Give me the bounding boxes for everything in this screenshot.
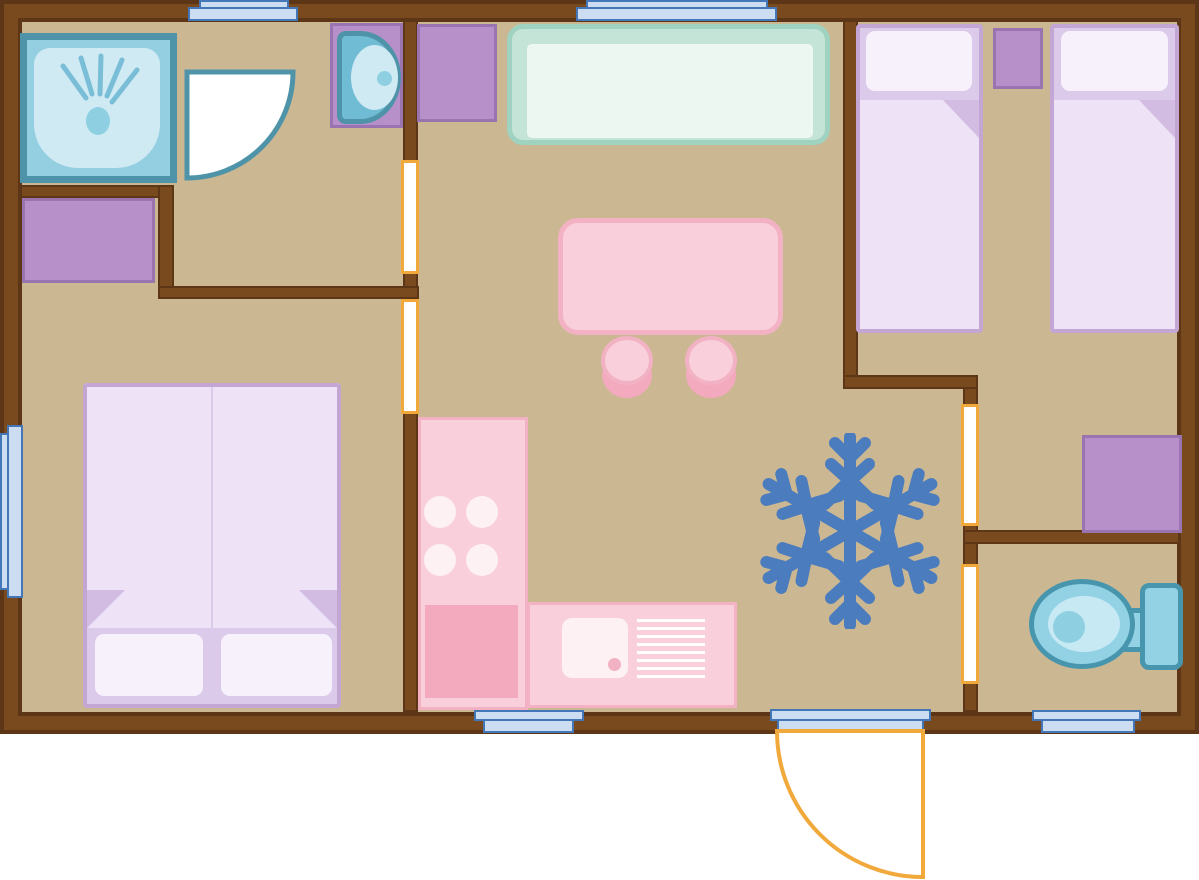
nightstand bbox=[993, 28, 1043, 89]
single-bed-left-pillow bbox=[866, 31, 972, 91]
floor-plan bbox=[0, 0, 1199, 880]
window-top-left-inner-pane bbox=[188, 7, 298, 21]
wall-right-lower-stub bbox=[963, 682, 978, 712]
toilet-bowl-water bbox=[1053, 611, 1085, 643]
single-bed-left-duvet bbox=[860, 100, 979, 329]
shower-door-swing bbox=[175, 60, 305, 190]
double-bed-seam bbox=[211, 387, 213, 628]
double-bed-pillow-left bbox=[95, 634, 203, 696]
stool-right bbox=[685, 336, 737, 385]
window-left-inner-pane bbox=[7, 425, 23, 598]
door-opening-bathroom bbox=[401, 160, 419, 274]
double-bed-pillow-right bbox=[221, 634, 332, 696]
hob-burner-2 bbox=[466, 496, 498, 528]
wall-hall-upper bbox=[403, 20, 418, 162]
single-bed-right-duvet bbox=[1054, 100, 1175, 329]
entrance-door-swing bbox=[768, 704, 938, 880]
door-opening-toilet bbox=[961, 564, 979, 684]
window-bottom-right-outer-pane bbox=[1041, 719, 1135, 733]
wall-under-shower bbox=[20, 185, 174, 198]
kitchen-appliance bbox=[425, 605, 518, 698]
kitchen-sink-drain bbox=[608, 658, 621, 671]
shower-spray-icon bbox=[34, 48, 160, 168]
wall-bathroom-vertical bbox=[158, 185, 174, 299]
door-opening-hall bbox=[401, 299, 419, 414]
kitchen-drainer-lines bbox=[637, 619, 705, 679]
bathroom-cabinet bbox=[22, 198, 155, 283]
wall-kitchen-side bbox=[403, 411, 418, 712]
window-top-center-inner-pane bbox=[576, 7, 777, 21]
door-opening-bedroom-right bbox=[961, 404, 979, 526]
toilet-tank bbox=[1140, 583, 1183, 670]
stool-left bbox=[601, 336, 653, 385]
window-bottom-kitchen-outer-pane bbox=[483, 719, 574, 733]
hob-burner-3 bbox=[424, 544, 456, 576]
sofa-cushion bbox=[527, 44, 813, 138]
hall-cabinet bbox=[417, 24, 497, 122]
wardrobe bbox=[1082, 435, 1182, 533]
snowflake-icon bbox=[752, 433, 948, 629]
dining-table bbox=[558, 218, 783, 335]
wall-bathroom-horizontal bbox=[158, 286, 419, 299]
hob-burner-4 bbox=[466, 544, 498, 576]
single-bed-right-pillow bbox=[1061, 31, 1168, 91]
washbasin-drain bbox=[377, 71, 392, 86]
hob-burner-1 bbox=[424, 496, 456, 528]
kitchen-counter bbox=[527, 602, 737, 708]
wall-bedroom-right-horizontal bbox=[843, 375, 978, 389]
